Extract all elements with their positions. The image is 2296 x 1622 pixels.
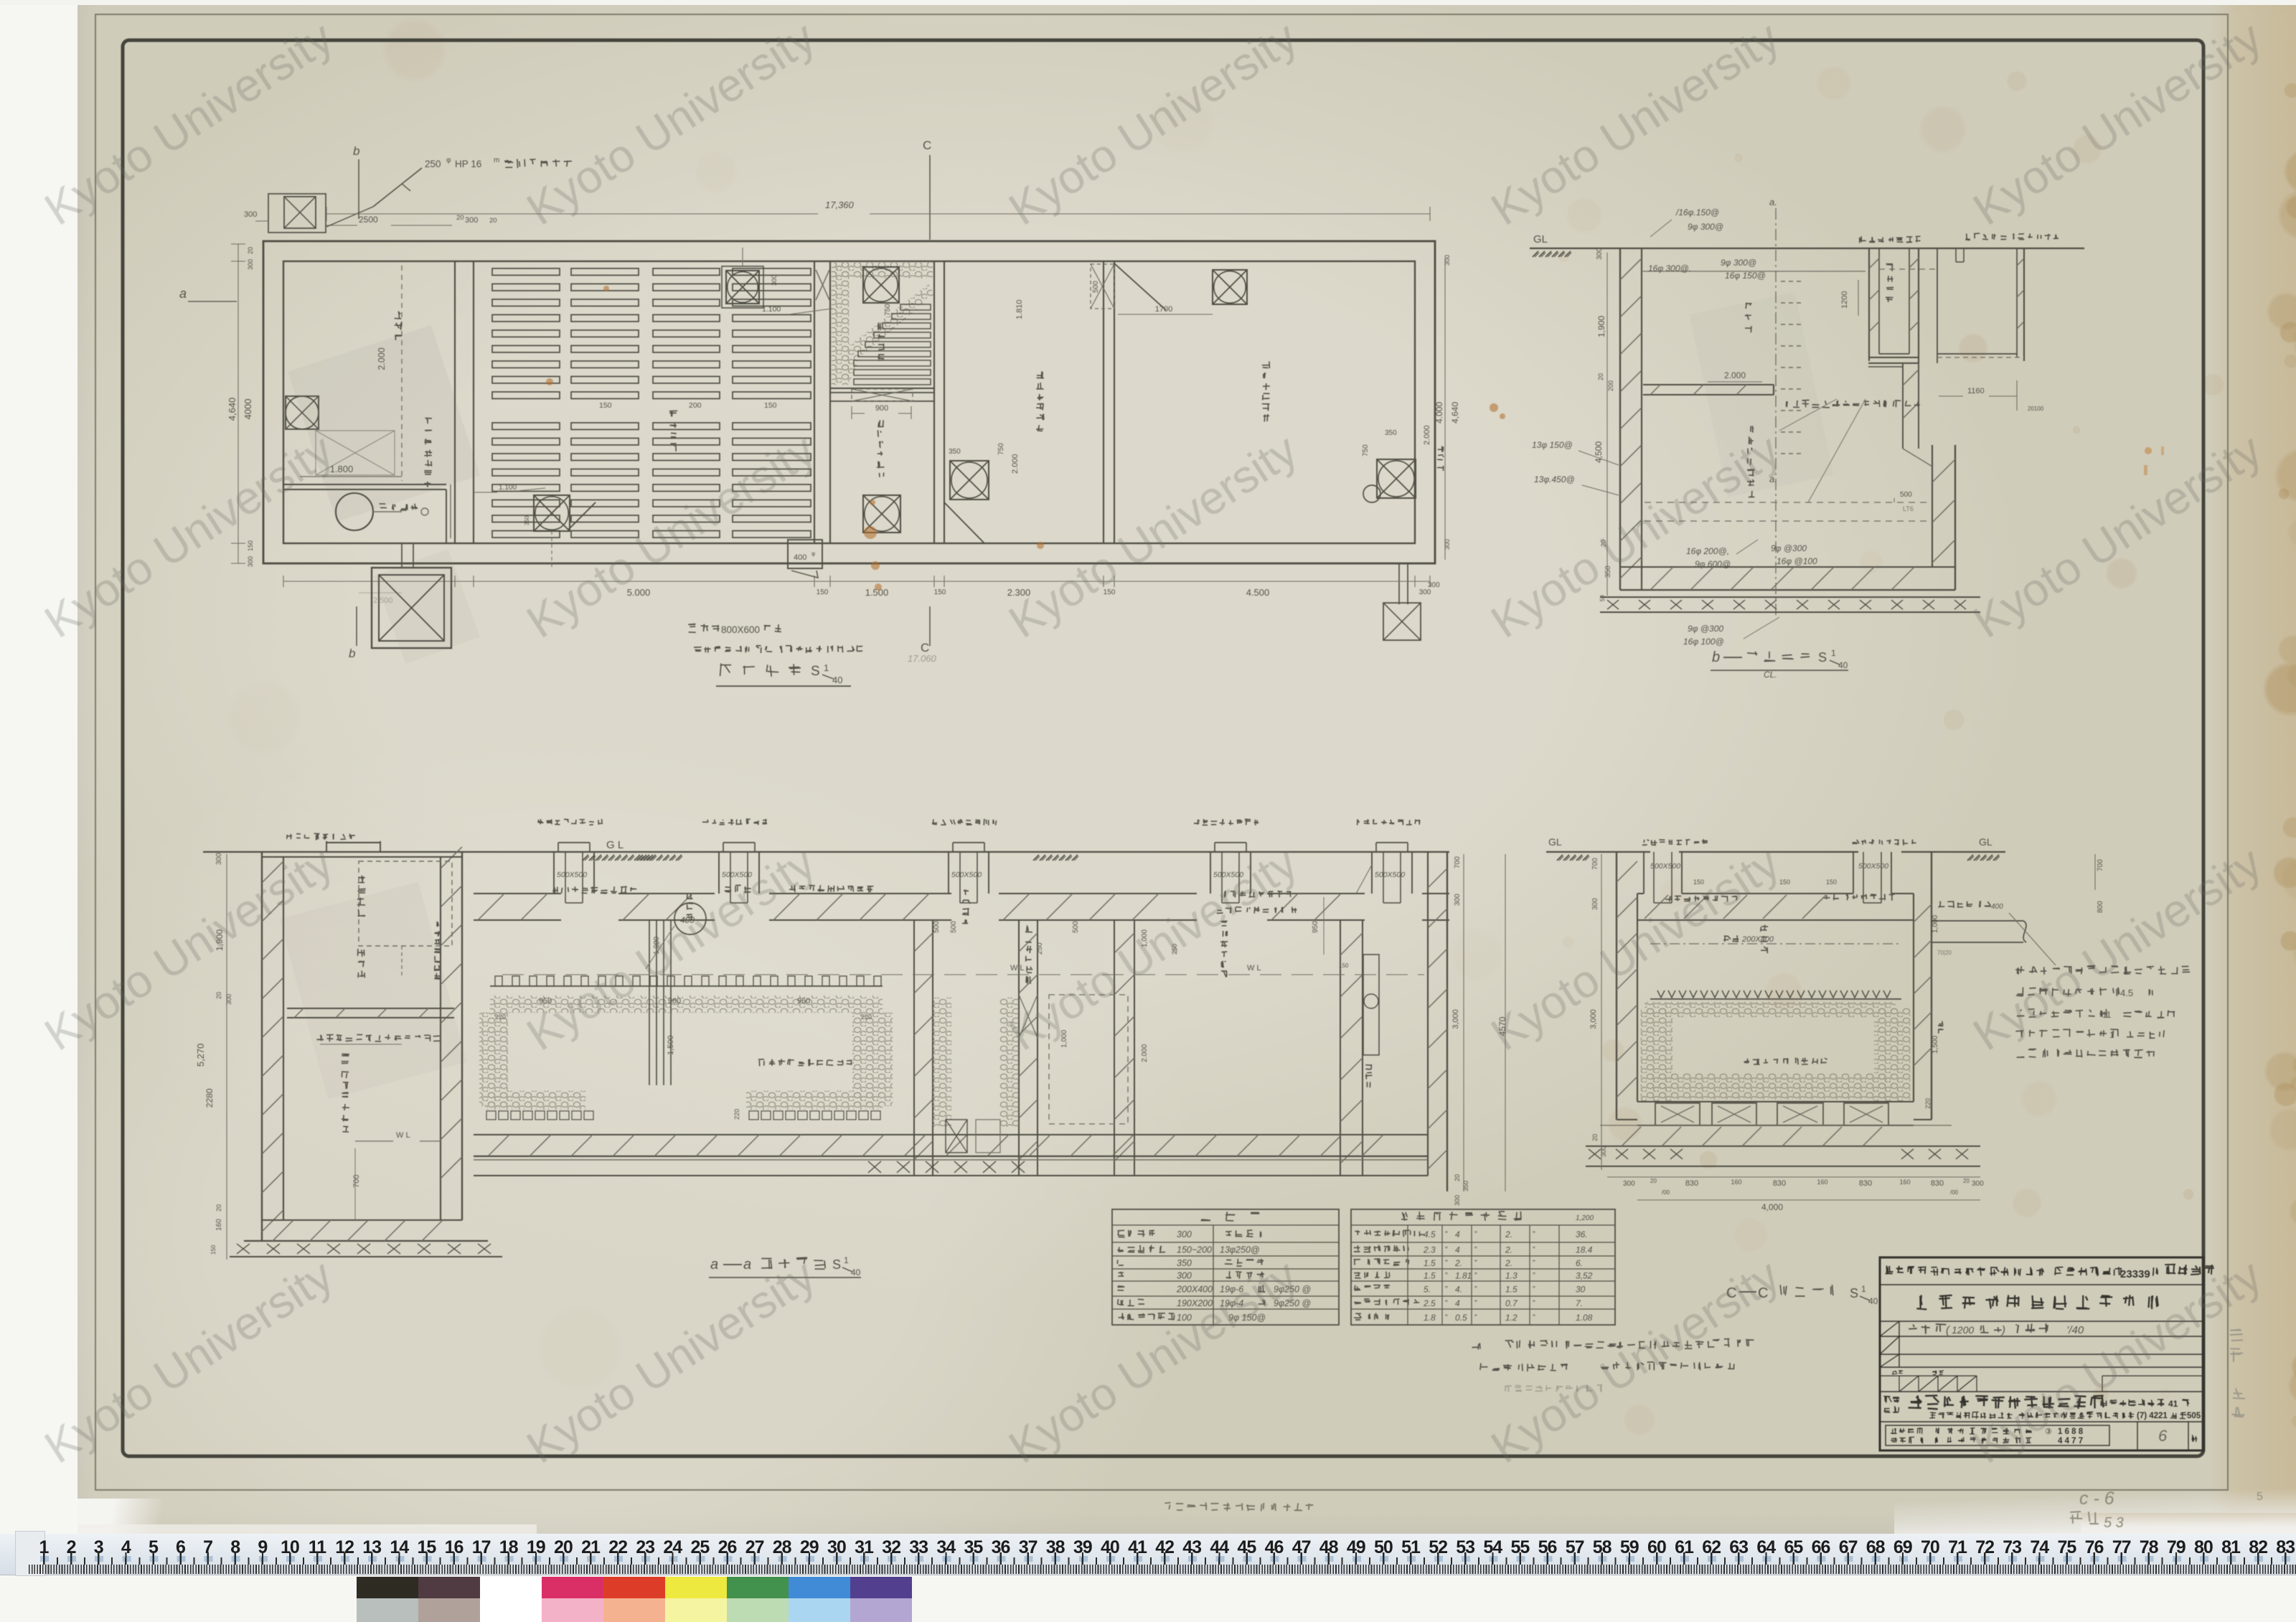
svg-text:”: ” xyxy=(1474,1230,1477,1239)
svg-text:700: 700 xyxy=(2097,859,2104,871)
svg-text:200: 200 xyxy=(1607,380,1614,391)
svg-text:150: 150 xyxy=(817,589,829,596)
svg-text:”: ” xyxy=(1445,1285,1448,1294)
svg-text:1.100: 1.100 xyxy=(762,305,781,314)
svg-text:150: 150 xyxy=(934,589,946,596)
svg-text:150: 150 xyxy=(764,401,777,410)
svg-text:505: 505 xyxy=(2187,1412,2201,1420)
svg-text:220: 220 xyxy=(733,1109,740,1120)
svg-text:1: 1 xyxy=(1831,648,1836,658)
svg-text:b: b xyxy=(353,144,359,158)
svg-text:2500: 2500 xyxy=(359,215,378,225)
svg-text:40: 40 xyxy=(1838,660,1848,670)
svg-text:1200: 1200 xyxy=(1840,291,1849,309)
svg-text:Kyoto University: Kyoto University xyxy=(1482,11,1789,235)
svg-text:300: 300 xyxy=(244,210,257,219)
svg-text:4.5: 4.5 xyxy=(1424,1229,1436,1239)
svg-text:0.5: 0.5 xyxy=(1455,1313,1467,1323)
svg-text:9φ 600@: 9φ 600@ xyxy=(1695,559,1731,569)
svg-text:300: 300 xyxy=(771,275,778,286)
svg-text:830: 830 xyxy=(1685,1179,1698,1188)
svg-text:C: C xyxy=(923,139,931,152)
svg-text:”: ” xyxy=(1474,1299,1477,1308)
svg-text:16φ @100: 16φ @100 xyxy=(1777,556,1817,566)
svg-text:2.: 2. xyxy=(1505,1258,1512,1268)
svg-text:Kyoto University: Kyoto University xyxy=(1000,1249,1307,1473)
svg-text:/00: /00 xyxy=(1662,1189,1670,1196)
svg-text:”: ” xyxy=(1474,1259,1477,1267)
svg-text:Kyoto University: Kyoto University xyxy=(1482,1249,1789,1473)
svg-text:(: ( xyxy=(1946,1324,1951,1336)
svg-text:1.2: 1.2 xyxy=(1505,1313,1518,1323)
svg-text:9φ @300: 9φ @300 xyxy=(1771,543,1807,553)
svg-text:1,200: 1,200 xyxy=(1576,1214,1594,1222)
svg-text:300: 300 xyxy=(1596,248,1604,260)
svg-text:11: 11 xyxy=(2102,1010,2112,1020)
svg-text:3,000: 3,000 xyxy=(1452,1009,1460,1029)
svg-text:300: 300 xyxy=(215,853,223,865)
svg-text:4: 4 xyxy=(1455,1245,1460,1255)
svg-text:φ: φ xyxy=(446,156,451,164)
svg-text:220: 220 xyxy=(1924,1098,1932,1109)
svg-text:1 6 8 8: 1 6 8 8 xyxy=(2058,1428,2084,1436)
svg-text:1160: 1160 xyxy=(1967,387,1985,395)
svg-text:500X500: 500X500 xyxy=(1650,862,1680,871)
svg-text:2.: 2. xyxy=(1454,1258,1462,1268)
svg-text:300: 300 xyxy=(1972,1180,1984,1188)
svg-text:1.5: 1.5 xyxy=(1424,1258,1436,1268)
svg-text:700: 700 xyxy=(1591,858,1599,870)
svg-text:Kyoto University: Kyoto University xyxy=(518,1249,824,1473)
svg-text:23339: 23339 xyxy=(2120,1268,2150,1280)
svg-text:Kyoto University: Kyoto University xyxy=(1000,836,1307,1060)
svg-text:200X400: 200X400 xyxy=(1176,1285,1213,1295)
svg-text:4.5: 4.5 xyxy=(2120,988,2133,998)
svg-text:4,640: 4,640 xyxy=(227,398,237,421)
svg-text:”: ” xyxy=(1474,1285,1477,1294)
svg-text:250: 250 xyxy=(425,159,441,169)
svg-text:300: 300 xyxy=(1591,898,1599,910)
svg-text:500X500: 500X500 xyxy=(951,871,982,879)
svg-text:300: 300 xyxy=(1177,1229,1192,1239)
svg-text:800X600: 800X600 xyxy=(721,624,760,635)
svg-text:300: 300 xyxy=(1444,539,1451,550)
svg-text:b: b xyxy=(1712,650,1720,665)
svg-text:300: 300 xyxy=(1444,255,1451,266)
svg-text:”: ” xyxy=(1445,1272,1448,1280)
svg-text:1: 1 xyxy=(824,662,829,673)
svg-text:Kyoto University: Kyoto University xyxy=(36,11,342,235)
svg-text:S: S xyxy=(832,1257,841,1272)
svg-text:”: ” xyxy=(1445,1299,1448,1308)
svg-text:20: 20 xyxy=(1650,1178,1657,1184)
svg-text:500: 500 xyxy=(933,921,941,933)
svg-text:300: 300 xyxy=(1177,1271,1192,1281)
svg-text:350: 350 xyxy=(949,448,961,456)
svg-text:750: 750 xyxy=(997,443,1005,455)
svg-text:150: 150 xyxy=(247,540,254,551)
svg-text:400: 400 xyxy=(794,553,806,562)
svg-text:2.000: 2.000 xyxy=(1011,454,1020,474)
svg-text:960: 960 xyxy=(668,997,681,1005)
svg-text:20: 20 xyxy=(1454,1174,1461,1181)
svg-text:6: 6 xyxy=(2158,1427,2168,1445)
svg-text:1.5: 1.5 xyxy=(1424,1271,1436,1281)
svg-text:1.8: 1.8 xyxy=(1424,1313,1436,1323)
svg-text:4.000: 4.000 xyxy=(1434,402,1444,423)
svg-text:500: 500 xyxy=(1072,921,1080,933)
svg-text:HP 16: HP 16 xyxy=(455,159,481,169)
svg-text:/00: /00 xyxy=(1950,1189,1959,1196)
svg-text:”: ” xyxy=(1533,1230,1535,1239)
svg-text:1: 1 xyxy=(1861,1284,1866,1294)
svg-text:350: 350 xyxy=(1462,1181,1469,1191)
svg-text:2.: 2. xyxy=(1505,1245,1512,1255)
svg-text:2.5: 2.5 xyxy=(1423,1298,1436,1308)
svg-text:W L: W L xyxy=(396,1131,410,1140)
svg-text:1: 1 xyxy=(844,1255,849,1265)
svg-text:18.4: 18.4 xyxy=(1576,1245,1593,1255)
svg-text:200X400: 200X400 xyxy=(1741,935,1774,944)
svg-text:): ) xyxy=(2000,1324,2005,1336)
svg-text:Kyoto University: Kyoto University xyxy=(1965,11,2271,235)
svg-text:220: 220 xyxy=(495,1013,506,1021)
svg-text:”: ” xyxy=(1533,1246,1535,1255)
svg-text:4,640: 4,640 xyxy=(1450,402,1460,423)
svg-text:500: 500 xyxy=(950,921,958,933)
svg-text:Kyoto University: Kyoto University xyxy=(1000,423,1307,647)
svg-text:160: 160 xyxy=(1899,1178,1910,1186)
svg-text:Kyoto University: Kyoto University xyxy=(518,11,824,235)
svg-text:S: S xyxy=(1818,650,1827,665)
svg-text:20: 20 xyxy=(489,217,497,225)
svg-text:700: 700 xyxy=(1454,856,1462,868)
svg-text:W L: W L xyxy=(1010,964,1025,972)
svg-text:1.08: 1.08 xyxy=(1576,1313,1593,1323)
svg-text:17,360: 17,360 xyxy=(825,200,855,210)
svg-text:20: 20 xyxy=(1591,1134,1599,1141)
svg-text:950: 950 xyxy=(1312,921,1319,933)
svg-text:1.810: 1.810 xyxy=(1015,299,1024,319)
svg-text:960: 960 xyxy=(797,997,810,1005)
svg-text:Kyoto University: Kyoto University xyxy=(36,1249,342,1473)
svg-text:20100: 20100 xyxy=(2028,405,2044,412)
svg-text:300: 300 xyxy=(465,216,478,225)
svg-text:500X500: 500X500 xyxy=(1858,862,1888,871)
svg-text:16φ 150@: 16φ 150@ xyxy=(1725,271,1766,281)
svg-text:4 4 7 7: 4 4 7 7 xyxy=(2058,1437,2083,1445)
svg-text:6.: 6. xyxy=(1576,1258,1583,1268)
svg-text:20: 20 xyxy=(247,247,254,254)
svg-text:”: ” xyxy=(1445,1246,1448,1255)
svg-text:c - 6: c - 6 xyxy=(2079,1489,2114,1509)
svg-text:17.060: 17.060 xyxy=(908,653,937,664)
svg-text:”: ” xyxy=(1533,1285,1535,1294)
svg-text:830: 830 xyxy=(1931,1179,1944,1188)
svg-text:”: ” xyxy=(1533,1272,1535,1280)
svg-text:”: ” xyxy=(1445,1259,1448,1267)
svg-text:20: 20 xyxy=(1597,373,1604,380)
svg-text:1: 1 xyxy=(2109,1030,2114,1040)
svg-text:Kyoto University: Kyoto University xyxy=(36,423,342,647)
svg-text:36.: 36. xyxy=(1576,1229,1588,1239)
svg-text:a: a xyxy=(179,286,187,301)
svg-text:9φ 300@: 9φ 300@ xyxy=(1688,222,1723,232)
svg-text:160: 160 xyxy=(1817,1178,1827,1186)
svg-text:1,500: 1,500 xyxy=(1932,1036,1939,1054)
svg-text:4.500: 4.500 xyxy=(1246,587,1270,598)
svg-text:GL: GL xyxy=(1533,233,1548,245)
svg-text:C: C xyxy=(921,641,929,655)
svg-text:G L: G L xyxy=(606,839,624,851)
svg-text:1,000: 1,000 xyxy=(1932,915,1939,933)
svg-text:350: 350 xyxy=(1177,1258,1192,1268)
svg-text:W L: W L xyxy=(1247,964,1261,972)
svg-text:20: 20 xyxy=(1963,1178,1970,1184)
svg-text:Kyoto University: Kyoto University xyxy=(1965,836,2271,1060)
svg-text:0.7: 0.7 xyxy=(1505,1298,1518,1308)
svg-text:CL.: CL. xyxy=(1764,670,1777,680)
svg-text:220: 220 xyxy=(861,1013,872,1021)
svg-text:9φ @300: 9φ @300 xyxy=(1688,624,1723,634)
svg-text:1.5: 1.5 xyxy=(1505,1285,1518,1295)
svg-text:150: 150 xyxy=(1339,962,1349,969)
svg-text:400: 400 xyxy=(1991,903,2003,911)
svg-text:9φ 300@: 9φ 300@ xyxy=(1721,258,1756,268)
svg-text:150: 150 xyxy=(599,401,612,410)
svg-text:”: ” xyxy=(1474,1272,1477,1280)
svg-text:150~200: 150~200 xyxy=(1177,1245,1212,1255)
svg-text:4: 4 xyxy=(1455,1298,1460,1308)
svg-text:4: 4 xyxy=(1455,1229,1460,1239)
svg-text:Kyoto University: Kyoto University xyxy=(1000,11,1307,235)
svg-text:2.: 2. xyxy=(1505,1229,1512,1239)
svg-text:800: 800 xyxy=(2097,901,2104,913)
svg-text:”: ” xyxy=(1533,1299,1535,1308)
svg-text:150: 150 xyxy=(210,1244,217,1255)
svg-text:1.100: 1.100 xyxy=(499,484,517,492)
svg-text:830: 830 xyxy=(1859,1179,1872,1188)
svg-text:a: a xyxy=(710,1257,718,1272)
svg-text:900: 900 xyxy=(875,404,888,413)
svg-text:3,000: 3,000 xyxy=(1589,1009,1598,1029)
svg-text:Kyoto University: Kyoto University xyxy=(1482,836,1789,1060)
svg-text:20: 20 xyxy=(215,992,222,999)
svg-text:13φ 150@: 13φ 150@ xyxy=(1532,440,1573,450)
svg-text:300: 300 xyxy=(225,994,232,1005)
svg-text:/16φ.150@: /16φ.150@ xyxy=(1675,207,1719,217)
svg-text:750: 750 xyxy=(884,304,892,316)
svg-text:16φ 100@: 16φ 100@ xyxy=(1683,637,1724,647)
svg-text:1.3: 1.3 xyxy=(1505,1271,1518,1281)
svg-text:”: ” xyxy=(1533,1259,1535,1267)
svg-text:”: ” xyxy=(1533,1313,1535,1322)
svg-text:1.81: 1.81 xyxy=(1455,1271,1472,1281)
svg-text:830: 830 xyxy=(1773,1179,1786,1188)
svg-text:30: 30 xyxy=(1576,1285,1586,1295)
svg-text:2280: 2280 xyxy=(204,1088,215,1107)
svg-text:Kyoto University: Kyoto University xyxy=(1965,423,2271,647)
svg-text:”: ” xyxy=(1474,1313,1477,1322)
svg-text:16φ 200@,: 16φ 200@, xyxy=(1686,546,1729,556)
svg-text:4,500: 4,500 xyxy=(1594,441,1604,463)
svg-text:S: S xyxy=(1850,1286,1858,1300)
svg-text:300: 300 xyxy=(1454,894,1462,906)
svg-text:4,000: 4,000 xyxy=(1761,1202,1783,1212)
svg-text:”: ” xyxy=(1474,1246,1477,1255)
svg-text:160: 160 xyxy=(1731,1178,1741,1186)
svg-text:50: 50 xyxy=(1599,595,1606,601)
svg-text:750: 750 xyxy=(1362,444,1370,456)
svg-text:5 3: 5 3 xyxy=(2104,1515,2124,1531)
svg-text:b: b xyxy=(349,647,355,660)
svg-text:3,52: 3,52 xyxy=(1576,1271,1593,1281)
svg-text:5.: 5. xyxy=(1424,1285,1431,1295)
svg-text:a: a xyxy=(743,1257,751,1272)
svg-text:300: 300 xyxy=(1454,1195,1461,1206)
svg-text:13φ250@: 13φ250@ xyxy=(1220,1245,1260,1255)
svg-text:7.: 7. xyxy=(1576,1298,1583,1308)
svg-text:16φ 300@.: 16φ 300@. xyxy=(1648,263,1691,273)
svg-text:(7) 4221: (7) 4221 xyxy=(2137,1412,2168,1420)
svg-text:”: ” xyxy=(1445,1230,1448,1239)
svg-text:350: 350 xyxy=(524,515,530,525)
svg-text:S: S xyxy=(811,664,820,679)
svg-text:300: 300 xyxy=(247,259,254,270)
svg-text:4.: 4. xyxy=(1455,1285,1462,1295)
svg-text:4000: 4000 xyxy=(243,399,253,420)
svg-text:Kyoto University: Kyoto University xyxy=(518,423,824,647)
svg-text:200: 200 xyxy=(689,401,702,410)
svg-text:300: 300 xyxy=(1623,1180,1635,1188)
svg-text:40: 40 xyxy=(1868,1296,1878,1306)
svg-text:500: 500 xyxy=(1900,491,1912,499)
svg-text:2.000: 2.000 xyxy=(1141,1044,1149,1062)
svg-text:160: 160 xyxy=(215,1219,223,1231)
svg-text:1,900: 1,900 xyxy=(1596,316,1606,337)
svg-text:40: 40 xyxy=(851,1267,861,1278)
svg-text:a.: a. xyxy=(1769,197,1777,207)
svg-text:300: 300 xyxy=(247,556,254,567)
svg-text:1200: 1200 xyxy=(1952,1324,1974,1336)
svg-text:500: 500 xyxy=(1092,281,1100,293)
svg-text:Kyoto University: Kyoto University xyxy=(1482,423,1789,647)
svg-text:500X500: 500X500 xyxy=(557,871,587,879)
svg-text:Kyoto University: Kyoto University xyxy=(1965,1249,2271,1473)
svg-text:350: 350 xyxy=(1385,429,1397,437)
svg-text:LT6: LT6 xyxy=(1903,505,1914,512)
svg-text:41: 41 xyxy=(2168,1399,2178,1409)
svg-text:300: 300 xyxy=(1419,589,1431,596)
svg-text:φ: φ xyxy=(811,550,815,557)
svg-text:250: 250 xyxy=(1036,942,1044,955)
svg-text:40: 40 xyxy=(832,675,842,685)
svg-text:2.000: 2.000 xyxy=(1423,425,1431,445)
svg-text:700: 700 xyxy=(352,1175,361,1188)
svg-text:1700: 1700 xyxy=(1155,305,1172,314)
svg-text:150: 150 xyxy=(1826,878,1837,886)
svg-text:GL: GL xyxy=(1979,836,1992,848)
svg-text:’/40: ’/40 xyxy=(2066,1324,2084,1336)
svg-text:20: 20 xyxy=(456,214,464,222)
svg-text:300: 300 xyxy=(1600,1146,1607,1157)
svg-text:5: 5 xyxy=(2257,1491,2263,1503)
svg-text:2.3: 2.3 xyxy=(1423,1245,1436,1255)
svg-text:13φ.450@: 13φ.450@ xyxy=(1534,474,1575,484)
svg-text:500X500: 500X500 xyxy=(1375,871,1405,879)
svg-text:”: ” xyxy=(1445,1313,1448,1322)
svg-text:GL: GL xyxy=(1548,836,1562,848)
svg-text:5,270: 5,270 xyxy=(195,1044,206,1067)
svg-text:70|20: 70|20 xyxy=(1937,950,1952,956)
svg-text:1,500: 1,500 xyxy=(667,1035,675,1055)
svg-text:20: 20 xyxy=(215,1204,222,1211)
svg-text:m: m xyxy=(494,156,499,164)
